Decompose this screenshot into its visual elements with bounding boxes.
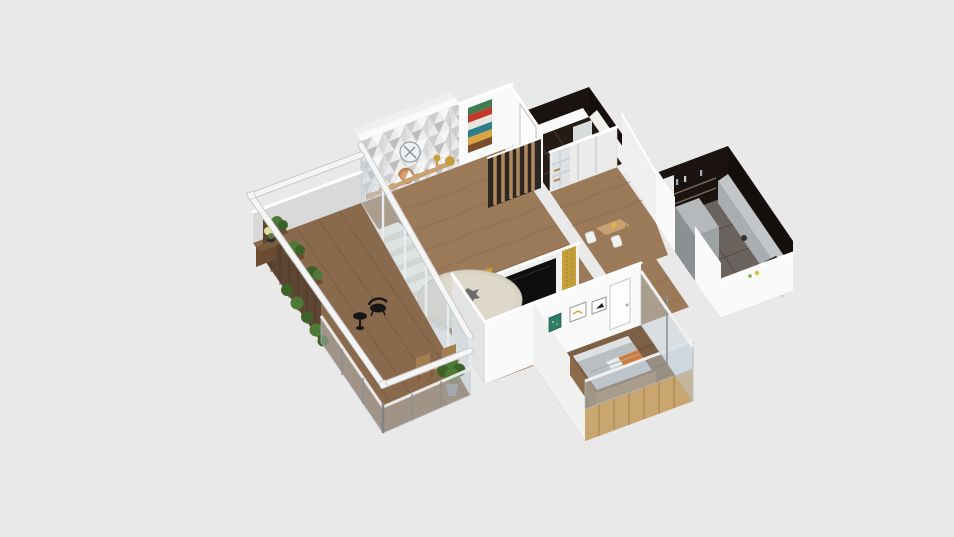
decor-green xyxy=(748,274,752,278)
pendant-lamp xyxy=(445,156,455,166)
floorplan-scene xyxy=(0,0,954,537)
chevron-artwork xyxy=(468,99,492,153)
yellow-decor xyxy=(612,223,617,228)
floorplan-3d-viewport[interactable] xyxy=(0,0,954,537)
gold-panel-right xyxy=(562,246,576,291)
pot xyxy=(741,235,747,241)
decor-yellow xyxy=(755,271,759,275)
door-knob xyxy=(626,304,629,307)
gold-deco xyxy=(434,155,441,162)
